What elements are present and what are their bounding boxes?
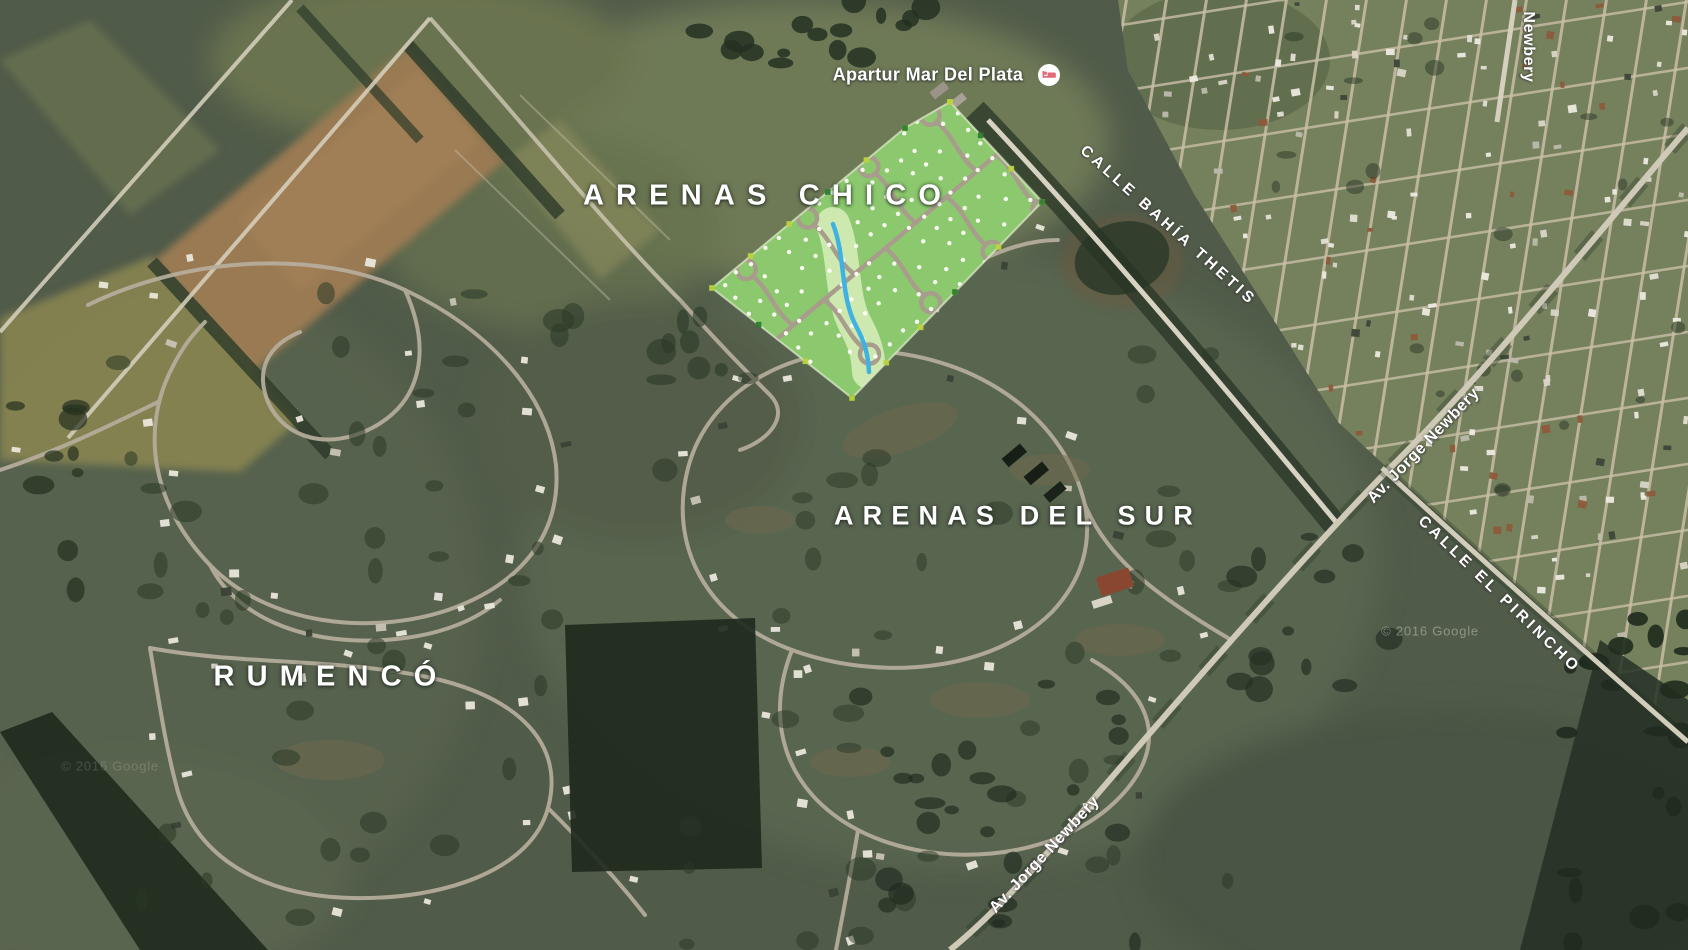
poi-label: Apartur Mar Del Plata bbox=[833, 65, 1024, 86]
satellite-imagery bbox=[0, 0, 1688, 950]
map-attribution: © 2016 Google bbox=[1381, 624, 1479, 639]
neighborhood-label-arenas-del-sur: ARENAS DEL SUR bbox=[834, 501, 1202, 532]
map-viewport[interactable]: ARENAS CHICO ARENAS DEL SUR RUMENCÓ CALL… bbox=[0, 0, 1688, 950]
neighborhood-label-rumenco: RUMENCÓ bbox=[213, 661, 448, 694]
street-label-newbery-top: Newbery bbox=[1519, 11, 1537, 82]
lodging-icon bbox=[1037, 63, 1061, 87]
neighborhood-label-arenas-chico: ARENAS CHICO bbox=[583, 180, 953, 213]
map-attribution-faint: © 2016 Google bbox=[61, 759, 159, 774]
